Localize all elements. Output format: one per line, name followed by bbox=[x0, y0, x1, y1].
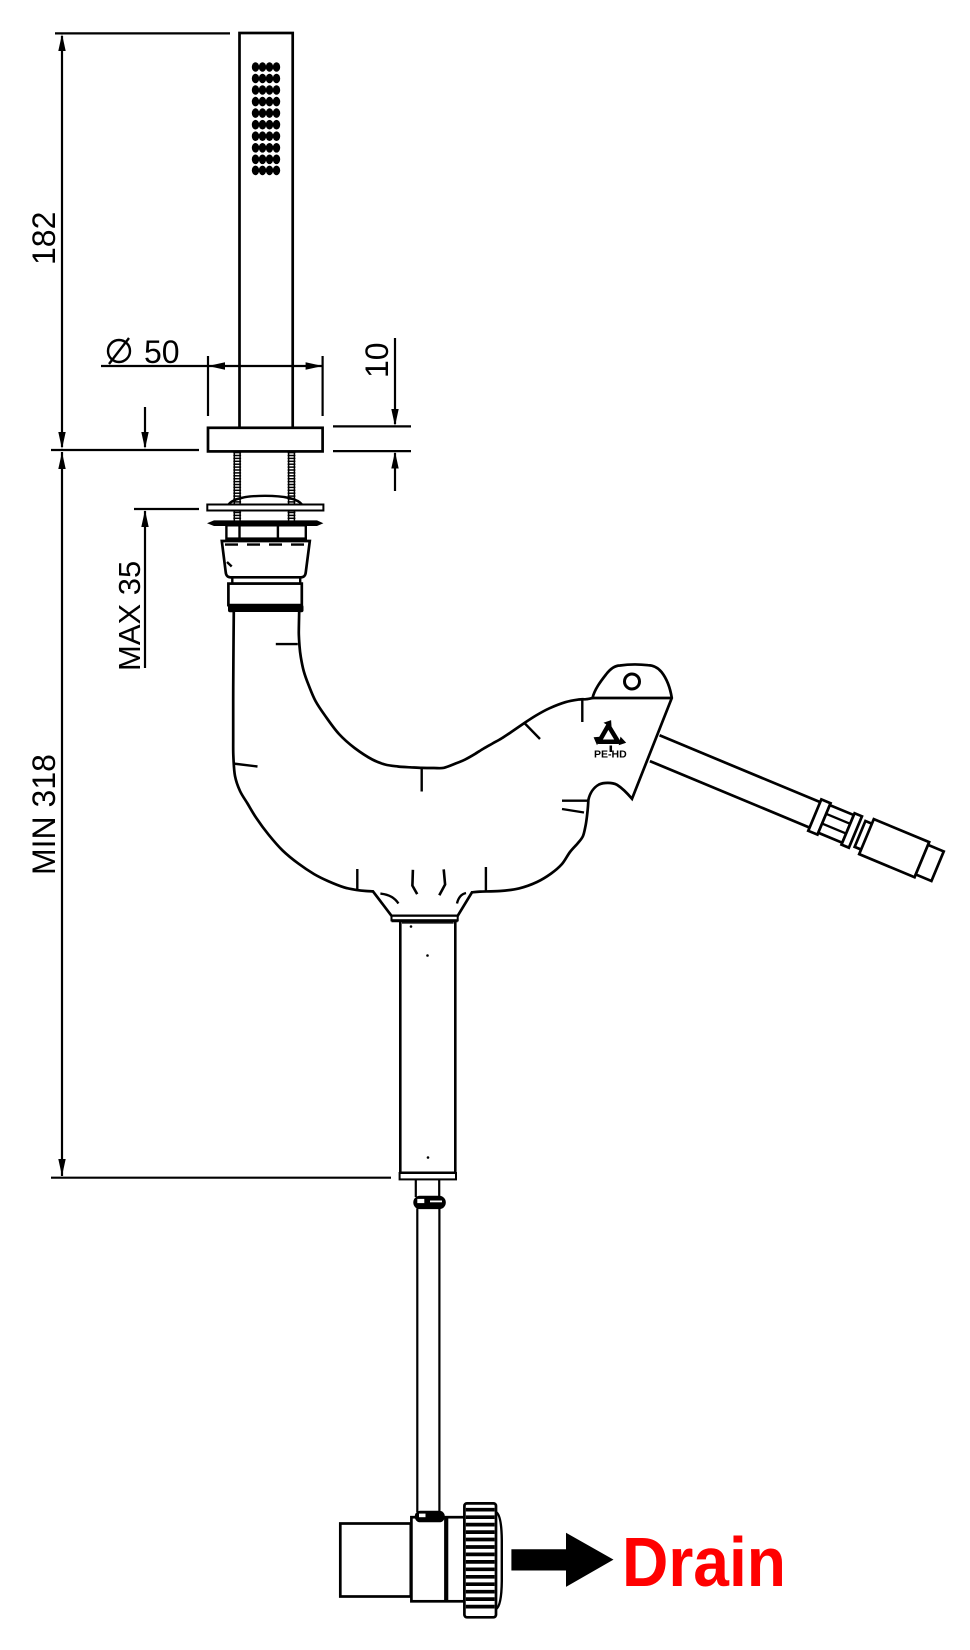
svg-text:10: 10 bbox=[359, 342, 395, 378]
svg-text:PE-HD: PE-HD bbox=[594, 749, 627, 761]
svg-text:MIN 318: MIN 318 bbox=[26, 754, 62, 875]
svg-text:MAX 35: MAX 35 bbox=[112, 561, 147, 671]
svg-text:182: 182 bbox=[26, 212, 62, 265]
svg-text:50: 50 bbox=[144, 334, 180, 370]
svg-text:Drain: Drain bbox=[622, 1523, 786, 1601]
